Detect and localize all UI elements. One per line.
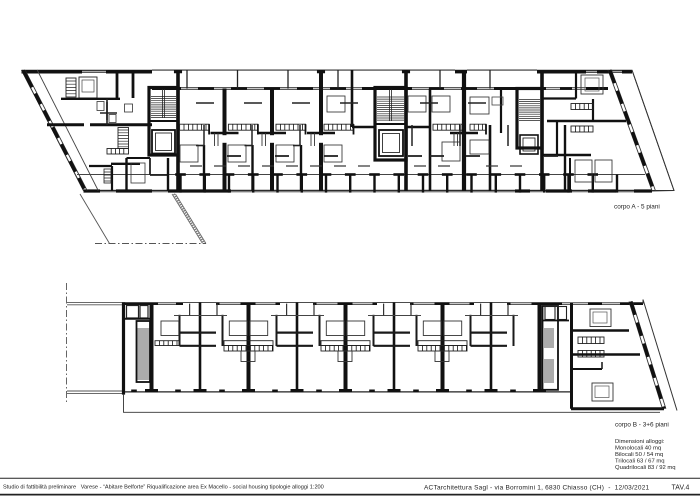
svg-text:Monolocali 40 mq: Monolocali 40 mq [615, 446, 661, 452]
svg-text:Quadrilocali 83 / 92 mq: Quadrilocali 83 / 92 mq [615, 465, 676, 471]
svg-text:Bilocali 50 / 54 mq: Bilocali 50 / 54 mq [615, 452, 663, 458]
svg-text:ACTarchitettura Sagl - via Bor: ACTarchitettura Sagl - via Borromini 1, … [424, 484, 650, 491]
svg-text:corpo B - 3+6 piani: corpo B - 3+6 piani [615, 422, 669, 429]
svg-text:Studio di fattibilità prelimin: Studio di fattibilità preliminare Varese… [3, 485, 324, 491]
svg-text:corpo A - 5 piani: corpo A - 5 piani [614, 204, 660, 211]
svg-text:Dimensioni alloggi:: Dimensioni alloggi: [615, 439, 665, 445]
svg-text:Trilocali 63 / 67 mq: Trilocali 63 / 67 mq [615, 459, 665, 465]
svg-text:TAV.4: TAV.4 [672, 484, 690, 491]
